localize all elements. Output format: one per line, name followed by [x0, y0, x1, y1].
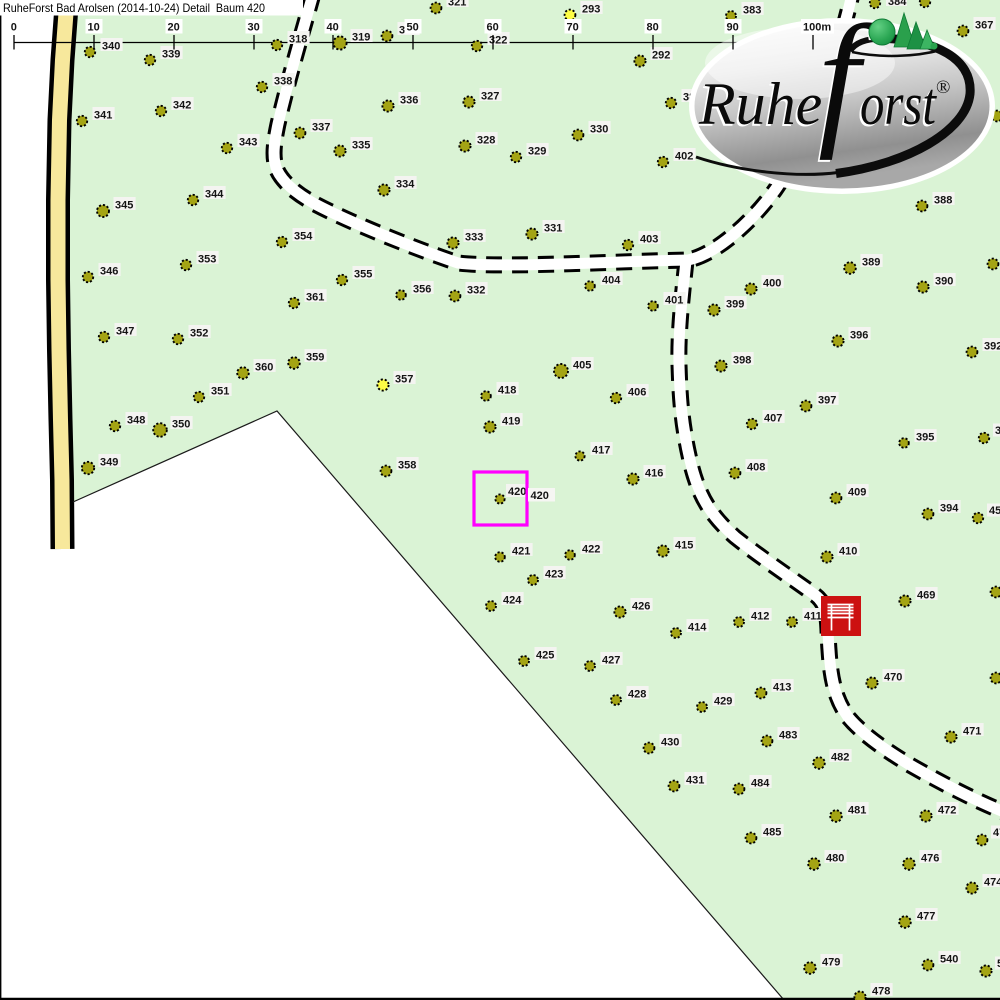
svg-text:319: 319: [352, 32, 370, 44]
svg-text:404: 404: [602, 275, 621, 287]
svg-text:408: 408: [747, 462, 765, 474]
svg-text:0: 0: [11, 22, 17, 34]
svg-text:292: 292: [652, 50, 670, 62]
svg-text:395: 395: [916, 432, 934, 444]
svg-text:360: 360: [255, 362, 273, 374]
svg-text:357: 357: [395, 374, 413, 386]
svg-text:429: 429: [714, 696, 732, 708]
svg-text:423: 423: [545, 569, 563, 581]
svg-text:399: 399: [726, 299, 744, 311]
svg-text:348: 348: [127, 415, 145, 427]
svg-text:329: 329: [528, 146, 546, 158]
svg-text:407: 407: [764, 413, 782, 425]
svg-text:352: 352: [190, 328, 208, 340]
svg-text:420: 420: [531, 490, 549, 502]
svg-text:409: 409: [848, 487, 866, 499]
svg-text:422: 422: [582, 544, 600, 556]
svg-text:394: 394: [940, 503, 959, 515]
svg-text:356: 356: [413, 284, 431, 296]
svg-text:336: 336: [400, 95, 418, 107]
svg-text:349: 349: [100, 457, 118, 469]
svg-text:347: 347: [116, 326, 134, 338]
svg-text:353: 353: [198, 254, 216, 266]
svg-text:80: 80: [647, 22, 659, 34]
svg-text:478: 478: [872, 986, 890, 998]
svg-text:477: 477: [917, 911, 935, 923]
svg-text:413: 413: [773, 682, 791, 694]
svg-text:344: 344: [205, 189, 224, 201]
svg-text:476: 476: [921, 853, 939, 865]
svg-text:318: 318: [289, 34, 307, 46]
svg-text:472: 472: [938, 805, 956, 817]
svg-text:330: 330: [590, 124, 608, 136]
svg-text:431: 431: [686, 775, 704, 787]
svg-text:20: 20: [168, 22, 180, 34]
svg-text:346: 346: [100, 266, 118, 278]
svg-text:332: 332: [467, 285, 485, 297]
svg-text:361: 361: [306, 292, 324, 304]
svg-text:469: 469: [917, 590, 935, 602]
svg-text:351: 351: [211, 386, 229, 398]
svg-text:39: 39: [995, 425, 1000, 437]
svg-text:470: 470: [884, 672, 902, 684]
svg-text:479: 479: [822, 957, 840, 969]
svg-text:424: 424: [503, 595, 522, 607]
svg-text:415: 415: [675, 540, 693, 552]
svg-text:402: 402: [675, 151, 693, 163]
svg-text:367: 367: [975, 20, 993, 32]
svg-text:484: 484: [751, 778, 770, 790]
svg-text:342: 342: [173, 100, 191, 112]
svg-text:430: 430: [661, 737, 679, 749]
svg-text:392: 392: [984, 341, 1000, 353]
svg-text:396: 396: [850, 330, 868, 342]
svg-text:40: 40: [327, 22, 339, 34]
svg-text:358: 358: [398, 460, 416, 472]
svg-text:406: 406: [628, 387, 646, 399]
svg-text:328: 328: [477, 135, 495, 147]
svg-text:60: 60: [487, 22, 499, 34]
svg-text:322: 322: [489, 35, 507, 47]
svg-text:416: 416: [645, 468, 663, 480]
svg-text:412: 412: [751, 611, 769, 623]
svg-text:428: 428: [628, 689, 646, 701]
svg-text:474: 474: [984, 877, 1000, 889]
svg-text:481: 481: [848, 805, 866, 817]
svg-text:orst: orst: [860, 71, 937, 137]
svg-text:400: 400: [763, 278, 781, 290]
svg-text:397: 397: [818, 395, 836, 407]
svg-text:389: 389: [862, 257, 880, 269]
svg-text:480: 480: [826, 853, 844, 865]
svg-text:345: 345: [115, 200, 133, 212]
svg-text:482: 482: [831, 752, 849, 764]
svg-text:425: 425: [536, 650, 554, 662]
svg-text:405: 405: [573, 360, 591, 372]
svg-text:355: 355: [354, 269, 372, 281]
svg-text:343: 343: [239, 137, 257, 149]
svg-text:410: 410: [839, 546, 857, 558]
svg-text:70: 70: [567, 22, 579, 34]
svg-text:321: 321: [448, 0, 466, 9]
svg-text:339: 339: [162, 49, 180, 61]
svg-text:401: 401: [665, 295, 683, 307]
svg-text:RuheForst Bad Arolsen (2014-10: RuheForst Bad Arolsen (2014-10-24) Detai…: [3, 1, 265, 15]
svg-text:®: ®: [936, 77, 950, 98]
svg-text:350: 350: [172, 419, 190, 431]
svg-text:30: 30: [248, 22, 260, 34]
svg-text:421: 421: [512, 546, 530, 558]
svg-text:Ruhe: Ruhe: [698, 71, 822, 137]
svg-text:411: 411: [804, 611, 822, 623]
svg-text:50: 50: [407, 22, 419, 34]
svg-text:403: 403: [640, 234, 658, 246]
svg-text:338: 338: [274, 76, 292, 88]
svg-text:45: 45: [989, 505, 1000, 517]
svg-text:418: 418: [498, 385, 516, 397]
svg-text:333: 333: [465, 232, 483, 244]
svg-text:335: 335: [352, 140, 370, 152]
svg-text:483: 483: [779, 730, 797, 742]
svg-text:398: 398: [733, 355, 751, 367]
svg-text:417: 417: [592, 445, 610, 457]
svg-text:90: 90: [727, 22, 739, 34]
svg-text:426: 426: [632, 601, 650, 613]
svg-text:540: 540: [940, 954, 958, 966]
svg-text:100m: 100m: [803, 22, 831, 34]
svg-text:337: 337: [312, 122, 330, 134]
svg-text:427: 427: [602, 655, 620, 667]
svg-text:384: 384: [888, 0, 907, 8]
svg-text:388: 388: [934, 195, 952, 207]
svg-text:334: 334: [396, 179, 415, 191]
svg-text:485: 485: [763, 827, 781, 839]
svg-text:341: 341: [94, 110, 112, 122]
svg-text:331: 331: [544, 223, 562, 235]
svg-text:383: 383: [743, 5, 761, 17]
svg-text:354: 354: [294, 231, 313, 243]
svg-text:419: 419: [502, 416, 520, 428]
svg-text:420: 420: [508, 486, 526, 498]
svg-text:390: 390: [935, 276, 953, 288]
svg-text:293: 293: [582, 4, 600, 16]
svg-text:327: 327: [481, 91, 499, 103]
svg-text:414: 414: [688, 622, 707, 634]
svg-text:47: 47: [993, 827, 1000, 839]
svg-text:340: 340: [102, 41, 120, 53]
svg-text:359: 359: [306, 352, 324, 364]
svg-text:471: 471: [963, 726, 981, 738]
svg-text:10: 10: [88, 22, 100, 34]
